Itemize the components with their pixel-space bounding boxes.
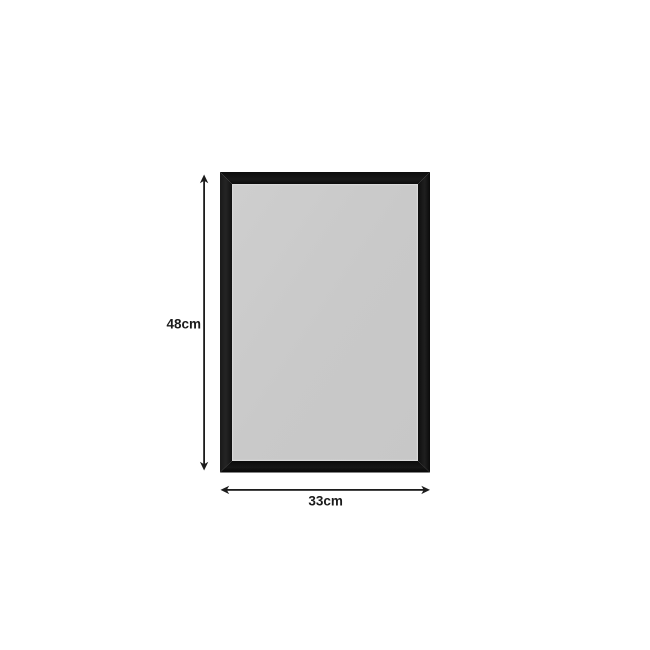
- svg-text:48cm: 48cm: [166, 317, 201, 332]
- svg-text:33cm: 33cm: [308, 493, 343, 508]
